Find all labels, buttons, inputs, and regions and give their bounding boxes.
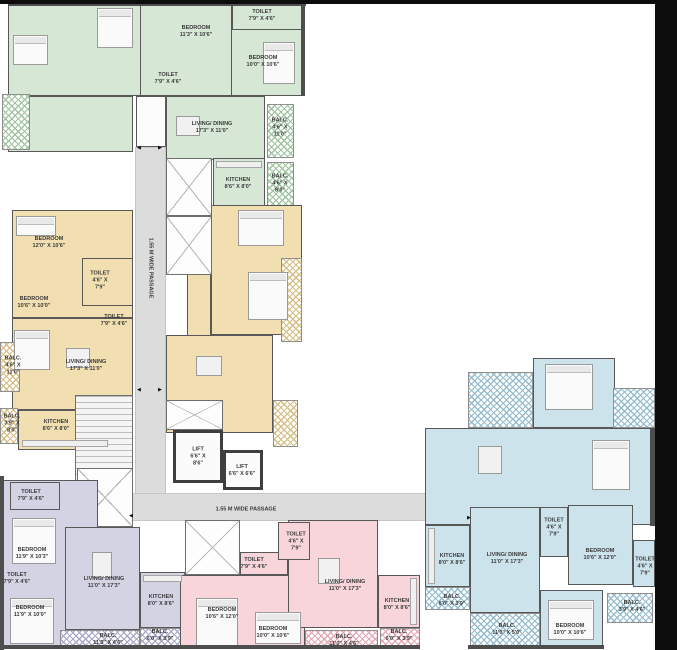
dining-table <box>92 552 112 578</box>
bed <box>10 598 54 644</box>
green-balcony-right2 <box>267 162 294 207</box>
bed <box>97 8 133 48</box>
blue-balcony-right <box>607 593 653 623</box>
bed <box>238 210 284 246</box>
purple-unit-toilet1-room <box>10 482 60 510</box>
kitchen-counter <box>216 161 262 168</box>
frame-top <box>0 0 677 4</box>
yellow-unit-toilet1-room <box>82 258 133 306</box>
kitchen-counter <box>410 578 417 625</box>
blue-balcony-bottom <box>470 613 540 648</box>
bed <box>248 272 288 320</box>
blue-unit-toilet1-room <box>540 507 568 557</box>
horizontal-passage <box>88 493 480 521</box>
wall-segment <box>301 4 305 96</box>
blue-unit-bedroom-mid <box>568 505 633 585</box>
bed <box>16 216 56 236</box>
bed <box>14 330 50 370</box>
wall-segment <box>0 476 4 650</box>
wall-segment <box>2 645 420 649</box>
bed <box>263 42 295 84</box>
blue-unit-living-room <box>470 507 540 613</box>
green-unit-toilet-top-room <box>232 4 304 30</box>
dining-table <box>196 356 222 376</box>
yellow2-balcony-1 <box>273 400 298 447</box>
green-balcony-left <box>2 94 30 150</box>
lift-2 <box>223 450 263 490</box>
blue-balcony-topright <box>613 388 655 428</box>
shaft-box-3 <box>166 400 223 430</box>
kitchen-counter <box>428 528 435 584</box>
shaft-box-5 <box>185 520 240 575</box>
blue-balcony-top <box>468 372 533 428</box>
dining-table <box>66 348 90 368</box>
green-unit-shaft <box>136 96 166 147</box>
shaft-box-1 <box>166 158 212 216</box>
kitchen-counter <box>22 440 108 447</box>
purple-unit-living-room <box>65 527 140 630</box>
bed <box>12 518 56 564</box>
kitchen-counter <box>143 575 182 582</box>
bed <box>13 35 48 65</box>
shaft-box-2 <box>166 216 212 275</box>
bed <box>196 598 238 646</box>
bed <box>592 440 630 490</box>
bed <box>255 612 301 644</box>
frame-right <box>655 0 677 650</box>
green-unit-bedroom-divider <box>140 4 232 96</box>
dining-table <box>478 446 502 474</box>
floor-plan: BEDROOM11'3" X 10'6"TOILET7'9" X 4'6"BED… <box>0 0 677 650</box>
yellow-balcony-2 <box>0 408 18 444</box>
pink-unit-toilet1-room <box>278 522 310 560</box>
dining-table <box>318 558 340 584</box>
dining-table <box>176 116 200 136</box>
bed <box>545 364 593 410</box>
lift-1 <box>173 430 223 483</box>
blue-unit-toilet2-room <box>633 540 655 587</box>
vertical-passage <box>135 147 166 495</box>
wall-segment <box>468 645 604 649</box>
blue-balcony-left <box>425 587 470 610</box>
green-balcony-right1 <box>267 104 294 158</box>
bed <box>548 600 594 640</box>
